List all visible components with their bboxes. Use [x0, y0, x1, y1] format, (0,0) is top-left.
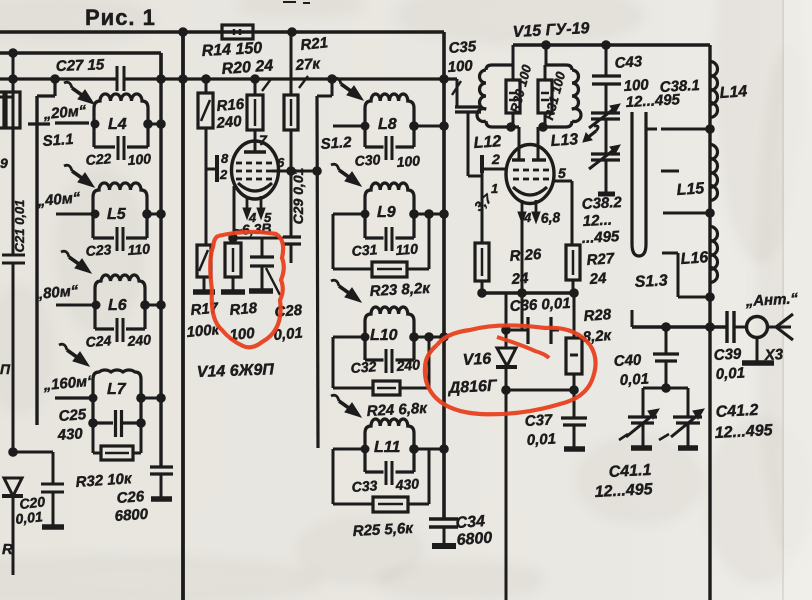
svg-text:0,01: 0,01 [715, 364, 745, 383]
svg-text:L6: L6 [108, 297, 127, 314]
svg-text:430: 430 [394, 475, 420, 493]
svg-text:~6,3В: ~6,3В [233, 220, 272, 238]
svg-text:100: 100 [396, 152, 421, 170]
svg-text:110: 110 [395, 240, 419, 258]
svg-text:R20 24: R20 24 [221, 57, 274, 78]
svg-text:R: R [2, 541, 13, 558]
svg-text:С36 0,01: С36 0,01 [509, 295, 571, 315]
svg-text:С25: С25 [58, 406, 87, 425]
svg-text:S1.3: S1.3 [634, 272, 668, 291]
svg-text:С43: С43 [614, 53, 643, 72]
svg-text:L4: L4 [108, 116, 127, 133]
svg-text:L10: L10 [370, 327, 398, 344]
svg-text:V16: V16 [462, 351, 491, 369]
svg-text:L16: L16 [680, 249, 709, 268]
svg-text:С39: С39 [713, 346, 742, 364]
svg-text:L12: L12 [473, 133, 502, 152]
svg-text:R24 6,8к: R24 6,8к [366, 400, 428, 420]
svg-text:9: 9 [0, 155, 8, 171]
svg-text:12...495: 12...495 [625, 91, 681, 111]
svg-text:Рис. 1: Рис. 1 [85, 5, 156, 30]
svg-text:6800: 6800 [456, 530, 493, 549]
svg-text:...495: ...495 [581, 228, 620, 247]
svg-text:24: 24 [510, 270, 529, 288]
svg-text:R18: R18 [229, 300, 259, 319]
svg-text:6800: 6800 [114, 506, 149, 525]
svg-text:1: 1 [491, 181, 498, 196]
svg-text:L15: L15 [676, 180, 706, 199]
svg-text:S1.1: S1.1 [42, 131, 74, 150]
svg-text:С23: С23 [85, 241, 112, 259]
svg-text:С37: С37 [524, 412, 553, 430]
svg-text:7: 7 [259, 132, 268, 148]
svg-text:С21 0,01: С21 0,01 [12, 200, 27, 253]
svg-text:R21: R21 [300, 34, 329, 54]
svg-text:0,01: 0,01 [526, 430, 556, 449]
svg-text:L14: L14 [719, 83, 748, 102]
svg-text:С34: С34 [455, 513, 486, 532]
svg-text:12...495: 12...495 [594, 481, 654, 501]
svg-text:2: 2 [491, 151, 500, 167]
svg-text:L7: L7 [107, 381, 127, 398]
svg-text:R 26: R 26 [509, 246, 542, 265]
svg-text:X3: X3 [763, 346, 784, 364]
svg-text:L13: L13 [550, 131, 579, 150]
svg-text:С30: С30 [354, 151, 381, 169]
svg-text:С41.1: С41.1 [608, 462, 652, 481]
svg-text:R27: R27 [586, 250, 615, 269]
svg-text:110: 110 [127, 240, 151, 258]
svg-text:2: 2 [219, 167, 228, 182]
svg-text:С32: С32 [350, 358, 377, 376]
svg-text:R16: R16 [216, 96, 246, 115]
svg-text:С31: С31 [351, 241, 378, 259]
svg-text:R25 5,6к: R25 5,6к [352, 520, 414, 540]
svg-text:240: 240 [395, 356, 421, 374]
svg-text:R28: R28 [583, 306, 612, 325]
svg-text:100: 100 [127, 150, 152, 168]
svg-text:R14 150: R14 150 [201, 40, 262, 60]
svg-text:С41.2: С41.2 [715, 402, 759, 421]
svg-text:6: 6 [277, 155, 285, 170]
svg-text:6,8: 6,8 [540, 209, 560, 226]
svg-text:С24: С24 [85, 332, 112, 350]
svg-text:R23 8,2к: R23 8,2к [369, 280, 431, 300]
svg-text:12...: 12... [582, 211, 612, 230]
svg-text:27к: 27к [294, 55, 322, 74]
svg-text:С33: С33 [351, 477, 378, 495]
svg-text:L8: L8 [378, 116, 397, 133]
svg-text:12...495: 12...495 [714, 422, 774, 442]
svg-text:„Ант.“: „Ант.“ [744, 290, 799, 310]
svg-text:Д816Г: Д816Г [446, 377, 498, 397]
svg-text:С38.2: С38.2 [581, 194, 623, 213]
svg-text:С29 0,01: С29 0,01 [290, 167, 306, 224]
svg-text:V14 6Ж9П: V14 6Ж9П [197, 361, 275, 381]
svg-text:8: 8 [221, 151, 229, 166]
svg-text:С40: С40 [613, 352, 642, 370]
svg-text:С35: С35 [448, 38, 477, 57]
svg-text:100: 100 [447, 57, 474, 76]
svg-text:П: П [0, 361, 11, 377]
svg-text:0,01: 0,01 [619, 370, 649, 389]
svg-text:С22: С22 [85, 150, 112, 168]
svg-text:L5: L5 [107, 206, 127, 223]
svg-text:С27 15: С27 15 [56, 56, 106, 75]
svg-text:240: 240 [126, 331, 152, 349]
svg-text:430: 430 [56, 425, 84, 444]
svg-text:L9: L9 [377, 204, 396, 221]
svg-text:5: 5 [558, 165, 566, 181]
svg-text:4: 4 [523, 210, 532, 225]
svg-text:24: 24 [588, 270, 607, 288]
svg-text:L11: L11 [374, 439, 400, 456]
svg-text:С26: С26 [116, 488, 145, 507]
svg-text:240: 240 [215, 113, 243, 132]
svg-text:S1.2: S1.2 [320, 134, 353, 153]
svg-text:0,01: 0,01 [15, 508, 44, 527]
